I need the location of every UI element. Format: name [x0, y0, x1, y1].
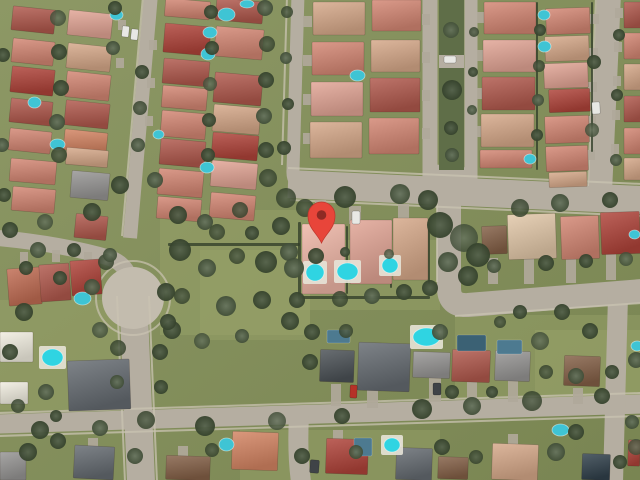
- tree: [533, 60, 545, 72]
- tree: [585, 123, 599, 137]
- house-roof: [545, 35, 590, 62]
- house-roof: [507, 213, 557, 260]
- driveway: [422, 90, 430, 101]
- house-roof: [484, 2, 536, 34]
- house-roof: [9, 158, 57, 185]
- swimming-pool: [28, 97, 41, 108]
- driveway: [149, 40, 157, 50]
- tree: [486, 386, 498, 398]
- house-roof: [549, 88, 591, 112]
- house-roof: [624, 64, 640, 90]
- tree: [194, 333, 210, 349]
- tree: [268, 412, 286, 430]
- house-roof: [211, 132, 259, 161]
- tree: [257, 0, 273, 16]
- tree: [135, 65, 149, 79]
- tree: [349, 445, 363, 459]
- tree: [152, 344, 168, 360]
- tree: [511, 199, 529, 217]
- swimming-pool: [631, 341, 640, 351]
- driveway: [303, 94, 312, 105]
- house-roof: [166, 455, 211, 480]
- tree: [469, 27, 479, 37]
- house-roof: [157, 168, 204, 198]
- tree: [554, 304, 570, 320]
- tree: [364, 288, 380, 304]
- swimming-pool: [524, 154, 536, 164]
- tree: [147, 172, 163, 188]
- cul-de-sac-bulb: [102, 267, 164, 329]
- tree: [83, 203, 101, 221]
- house-roof: [11, 186, 56, 214]
- swimming-pool: [153, 130, 164, 139]
- swimming-pool: [219, 438, 234, 451]
- tree: [53, 80, 69, 96]
- tree: [551, 194, 569, 212]
- house-roof: [11, 38, 55, 66]
- parked-car: [592, 102, 601, 114]
- driveway: [573, 388, 583, 404]
- tree: [434, 439, 450, 455]
- house-roof: [451, 349, 490, 382]
- swimming-pool: [552, 424, 569, 436]
- tree: [538, 255, 554, 271]
- tree: [50, 410, 62, 422]
- parked-car: [310, 460, 320, 474]
- tree: [131, 138, 145, 152]
- driveway: [422, 14, 430, 25]
- tree: [245, 226, 259, 240]
- driveway: [367, 390, 378, 408]
- house-roof: [209, 192, 256, 221]
- house-roof: [438, 456, 469, 479]
- driveway: [615, 8, 623, 18]
- house-roof: [73, 445, 115, 480]
- driveway: [422, 128, 430, 139]
- tree: [445, 148, 459, 162]
- swimming-pool: [218, 8, 235, 21]
- tree: [92, 322, 108, 338]
- house-roof: [549, 171, 588, 187]
- parked-car: [433, 383, 441, 395]
- tree: [308, 248, 324, 264]
- tree: [205, 41, 219, 55]
- tree: [469, 450, 483, 464]
- swimming-pool: [382, 258, 398, 273]
- tree: [339, 324, 353, 338]
- tree: [2, 222, 18, 238]
- swimming-pool: [240, 0, 254, 8]
- tree: [198, 259, 216, 277]
- house-roof: [66, 43, 112, 72]
- tree: [396, 284, 412, 300]
- house-roof: [311, 82, 363, 116]
- tree: [602, 192, 618, 208]
- driveway: [606, 252, 616, 280]
- swimming-pool: [200, 162, 214, 173]
- house-roof: [210, 160, 258, 190]
- tree: [384, 249, 394, 259]
- house-roof: [162, 58, 210, 87]
- tree: [259, 36, 275, 52]
- tree: [53, 271, 67, 285]
- driveway: [614, 42, 622, 52]
- tree: [31, 421, 49, 439]
- tree: [19, 443, 37, 461]
- tree: [445, 385, 459, 399]
- driveway: [145, 116, 153, 126]
- house-roof: [310, 122, 362, 158]
- tree: [334, 408, 350, 424]
- driveway: [611, 144, 619, 154]
- house-roof: [161, 85, 208, 111]
- driveway: [612, 110, 620, 120]
- tree: [37, 214, 53, 230]
- tree: [390, 184, 410, 204]
- house-roof: [70, 170, 110, 200]
- tree: [340, 247, 350, 257]
- tree: [443, 22, 459, 38]
- tree: [235, 329, 249, 343]
- tree: [157, 283, 175, 301]
- tree: [137, 411, 155, 429]
- swimming-pool: [306, 264, 324, 281]
- tree: [539, 365, 553, 379]
- tree: [611, 89, 623, 101]
- house-roof: [11, 6, 56, 34]
- screened-pool: [457, 335, 486, 351]
- tree: [92, 420, 108, 436]
- house-roof: [159, 138, 206, 168]
- tree: [302, 354, 318, 370]
- tree: [625, 415, 639, 429]
- driveway: [613, 76, 621, 86]
- tree: [427, 212, 453, 238]
- tree: [280, 52, 292, 64]
- tree: [30, 242, 46, 258]
- street: [600, 0, 609, 192]
- tree: [51, 44, 67, 60]
- tree: [531, 129, 543, 141]
- house-roof: [369, 118, 419, 154]
- satellite-canvas: [0, 0, 640, 480]
- driveway: [331, 384, 341, 406]
- house-roof: [371, 40, 420, 72]
- driveway: [303, 55, 312, 66]
- house-roof: [65, 147, 108, 168]
- tree: [38, 384, 54, 400]
- parked-car: [352, 211, 360, 224]
- tree: [277, 141, 291, 155]
- tree: [195, 416, 215, 436]
- tree: [281, 312, 299, 330]
- tree: [547, 443, 565, 461]
- house-roof: [560, 215, 599, 259]
- tree: [467, 105, 477, 115]
- swimming-pool: [42, 349, 63, 366]
- house-roof: [64, 100, 110, 129]
- tree: [432, 324, 448, 340]
- screened-pool: [497, 340, 522, 354]
- driveway: [524, 256, 534, 284]
- house-roof: [624, 158, 640, 180]
- tree: [127, 448, 143, 464]
- tree: [258, 142, 274, 158]
- house-roof: [213, 72, 263, 106]
- tree: [531, 332, 549, 350]
- house-roof: [413, 351, 451, 378]
- driveway: [508, 380, 518, 402]
- tree: [253, 291, 271, 309]
- swimming-pool: [203, 27, 217, 38]
- tree: [160, 314, 176, 330]
- tree: [106, 41, 120, 55]
- parked-car: [121, 26, 129, 38]
- house-roof: [544, 62, 589, 89]
- tree: [49, 114, 65, 130]
- tree: [110, 340, 126, 356]
- swimming-pool: [538, 41, 551, 52]
- house-roof: [483, 40, 536, 72]
- tree: [209, 224, 225, 240]
- street: [613, 296, 618, 480]
- street: [298, 416, 301, 480]
- tree: [204, 5, 218, 19]
- tree: [619, 252, 633, 266]
- tree: [169, 239, 191, 261]
- tree: [2, 344, 18, 360]
- house-roof: [491, 443, 538, 480]
- tree: [84, 279, 100, 295]
- house-roof: [65, 71, 111, 101]
- house-roof: [624, 33, 640, 59]
- house-roof: [624, 128, 640, 154]
- parked-car: [130, 29, 138, 41]
- tree: [494, 316, 506, 328]
- tree: [613, 455, 627, 469]
- tree: [587, 55, 601, 69]
- tree: [50, 10, 66, 26]
- tree: [334, 186, 356, 208]
- driveway: [147, 78, 155, 88]
- tree: [103, 248, 117, 262]
- tree: [458, 266, 478, 286]
- tree: [605, 365, 619, 379]
- house-roof: [481, 114, 534, 147]
- tree: [613, 29, 625, 41]
- house-roof: [8, 128, 52, 154]
- house-roof: [10, 66, 55, 96]
- house-roof: [545, 115, 590, 144]
- tree: [272, 217, 290, 235]
- house-roof: [372, 0, 421, 31]
- map-viewport[interactable]: [0, 0, 640, 480]
- swimming-pool: [384, 438, 400, 452]
- tree: [513, 305, 527, 319]
- driveway: [303, 16, 312, 27]
- tree: [522, 391, 542, 411]
- pin-inner-dot: [317, 210, 327, 220]
- tree: [169, 206, 187, 224]
- tree: [463, 397, 481, 415]
- tree: [154, 380, 168, 394]
- swimming-pool: [629, 230, 640, 239]
- house-roof: [482, 77, 535, 110]
- driveway: [398, 204, 409, 220]
- house-roof: [624, 2, 640, 28]
- tree: [15, 303, 33, 321]
- tree: [258, 72, 274, 88]
- tree: [438, 252, 458, 272]
- tree: [294, 448, 310, 464]
- tree: [304, 324, 320, 340]
- swimming-pool: [538, 10, 550, 20]
- tree: [202, 113, 216, 127]
- tree: [582, 323, 598, 339]
- tree: [203, 77, 217, 91]
- tree: [108, 1, 122, 15]
- house-roof: [624, 96, 640, 122]
- tree: [51, 147, 67, 163]
- tree: [418, 190, 438, 210]
- house-roof: [160, 110, 207, 140]
- house-roof: [313, 2, 365, 35]
- tree: [532, 94, 544, 106]
- tree: [11, 399, 25, 413]
- tree: [282, 98, 294, 110]
- driveway: [116, 58, 124, 68]
- tree: [110, 375, 124, 389]
- tree: [205, 443, 219, 457]
- swimming-pool: [337, 263, 358, 280]
- tree: [281, 6, 293, 18]
- tree: [568, 424, 584, 440]
- tree: [19, 261, 33, 275]
- tree: [255, 251, 277, 273]
- tree: [568, 368, 584, 384]
- tree: [133, 101, 147, 115]
- house-roof: [319, 349, 354, 382]
- tree: [276, 188, 296, 208]
- tree: [201, 148, 215, 162]
- house-roof: [212, 104, 261, 135]
- tree: [534, 24, 546, 36]
- tree: [256, 108, 272, 124]
- parked-car: [444, 56, 456, 63]
- tree: [289, 292, 305, 308]
- tree: [284, 258, 304, 278]
- tree: [442, 80, 462, 100]
- house-roof: [370, 78, 420, 112]
- tree: [232, 202, 248, 218]
- tree: [50, 433, 66, 449]
- tree: [466, 243, 490, 267]
- tree: [468, 67, 478, 77]
- tree: [332, 291, 348, 307]
- tree: [259, 169, 277, 187]
- house-roof: [546, 145, 589, 171]
- tree: [174, 288, 190, 304]
- house-roof: [546, 7, 591, 35]
- tree: [422, 280, 438, 296]
- tree: [487, 259, 501, 273]
- driveway: [422, 52, 430, 63]
- driveway: [52, 250, 60, 262]
- house-roof: [582, 454, 611, 480]
- tree: [610, 154, 622, 166]
- tree: [216, 296, 236, 316]
- house-roof: [67, 10, 113, 39]
- swimming-pool: [350, 70, 365, 81]
- house-roof: [231, 431, 278, 471]
- tree: [111, 176, 129, 194]
- tree: [412, 399, 432, 419]
- house-roof: [357, 342, 411, 392]
- tree: [229, 248, 245, 264]
- tree: [67, 243, 81, 257]
- parked-car: [350, 385, 357, 398]
- house-roof: [214, 26, 264, 60]
- tree: [579, 254, 593, 268]
- tree: [444, 121, 458, 135]
- tree: [594, 388, 610, 404]
- house-roof: [494, 350, 530, 381]
